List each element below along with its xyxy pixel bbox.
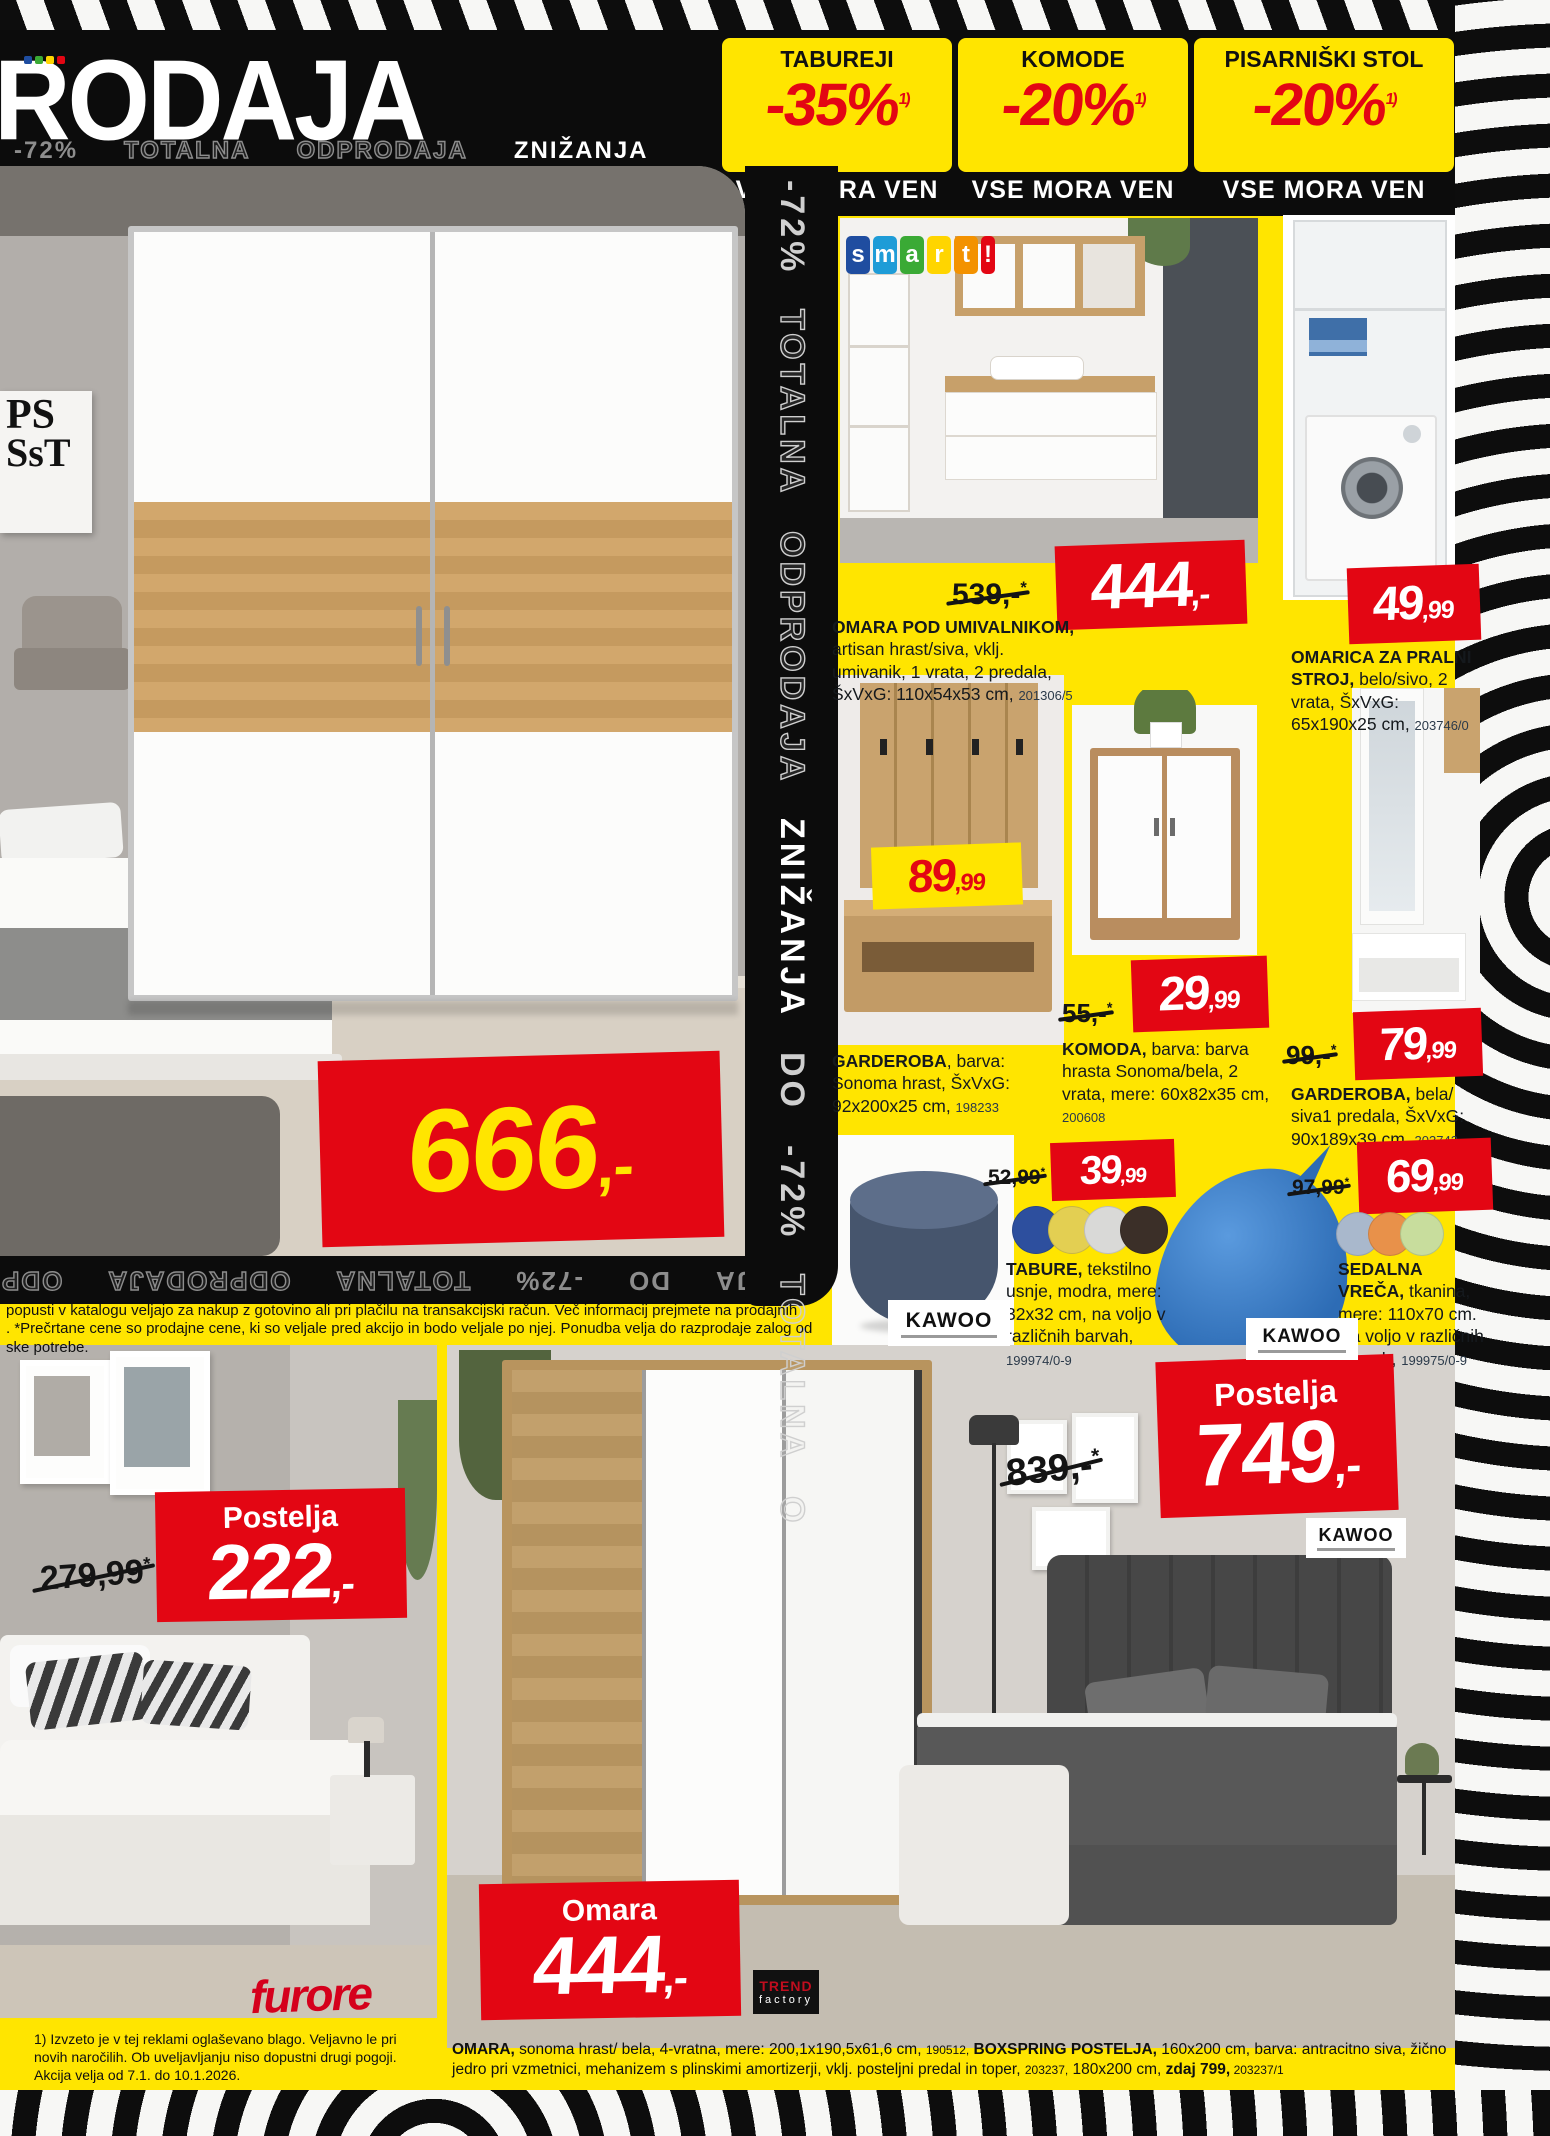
door-handle [1170,818,1175,836]
mini-mark-square [57,56,65,64]
poster-text-line1: PS [0,391,92,435]
coat-hook [972,739,979,755]
price: 444,- [1090,552,1212,617]
promo-tagline: VSE MORA VEN [1194,176,1454,210]
smart-logo-letter: s [846,236,870,274]
kawoo-logo: KAWOO [888,1300,1010,1346]
footnote-product-name: OMARA, [452,2041,515,2058]
footnote-sku: 203237/1 [1230,2063,1283,2077]
price: 749,- [1192,1408,1363,1498]
promo-box-tabureji: TABUREJI -35%1) [722,38,952,172]
watermark-strip-vertical: -72% TOTALNA ODPRODAJA ZNIŽANJA DO -72% … [745,166,838,1306]
price-box: 79,99 [1353,1008,1483,1080]
bed-pillow [0,802,124,865]
footnote-text: sonoma hrast/ bela, 4-vratna, mere: 200,… [515,2041,926,2058]
price-box-omara: Omara 444,- [479,1880,741,2021]
price: 29,99 [1158,970,1241,1019]
coat-hook [880,739,887,755]
zebra-pattern-bottom [0,2090,1550,2136]
kawoo-logo-text: KAWOO [906,1309,993,1333]
dark-wall-panel [1163,218,1258,563]
shelf-line [1295,308,1445,311]
watermark-word: TOTALNA [124,137,250,165]
armchair-seat [14,648,130,690]
product-photo-washer-cabinet [1283,215,1455,600]
wash-basin [990,356,1084,380]
promo-category: KOMODE [1021,46,1125,73]
mini-mark-square [35,56,43,64]
coat-hook [1016,739,1023,755]
product-photo-garderoba-2 [1352,688,1480,1013]
smart-logo-letter: m [873,236,897,274]
fine-print-line: popusti v katalogu veljajo za nakup z go… [6,1302,836,1320]
watermark-word: ODPRODAJA [296,137,467,165]
frame-art [124,1367,190,1467]
watermark-word: -72% [514,1265,583,1296]
promo-discount: -35%1) [763,73,912,136]
kawoo-logo-text: KAWOO [1263,1326,1342,1348]
kawoo-logo: KAWOO [1306,1518,1406,1558]
furore-logo: furore [249,1966,372,2024]
watermark-strip-flipped: ZNIŽANJA DO -72% TOTALNA ODPRODAJA ODP [0,1256,774,1304]
frame-art [34,1376,90,1456]
plant-pot [1150,722,1182,748]
smart-logo-letter: t [954,236,978,274]
wall-poster: PS SsT [0,391,92,533]
footnote-product-name: BOXSPRING POSTELJA, [969,2041,1157,2058]
mini-mark-square [46,56,54,64]
wall-frame [110,1351,210,1495]
price-box: 444,- [1055,540,1248,631]
color-swatch [1120,1206,1168,1254]
drawer-line [946,435,1156,437]
hero-price-box: 666,- [318,1051,725,1247]
product-description: GARDEROBA, barva: Sonoma hrast, ŠxVxG: 9… [832,1050,1067,1117]
footnote-sku: 190512, [926,2043,969,2057]
fine-print-line: novih naročilih. Ob uveljavljanju niso d… [34,2048,434,2066]
price: 79,99 [1378,1021,1458,1067]
smart-logo-letter: a [900,236,924,274]
promo-tagline: VSE MORA VEN [958,176,1188,210]
side-table-top [1397,1775,1452,1783]
watermark-word: DO [627,1265,670,1296]
price: 444,- [530,1925,690,2006]
fine-print-line: . *Prečrtane cene so prodajne cene, ki s… [6,1320,836,1338]
old-price: 539,-* [952,578,1027,612]
watermark-word: ODP [0,1265,62,1296]
shoe-bench [844,900,1052,1012]
footnote-text: 180x200 cm, [1068,2061,1165,2078]
washing-machine [1305,415,1437,581]
wardrobe-shadow [128,1001,738,1015]
footnote-price-now: zdaj 799, [1166,2061,1231,2078]
price-box-yellow: 89,99 [871,842,1023,909]
watermark-word: DO [772,1052,811,1111]
striped-pillow [25,1651,149,1731]
striped-pillow [140,1659,252,1730]
wardrobe [128,226,738,1001]
bench-slot [1359,958,1459,992]
old-price: 279,99* [39,1552,153,1599]
price-box-postelja-right: Postelja 749,- [1155,1354,1398,1518]
washer-door [1341,457,1403,519]
smart-logo-bang: ! [981,236,995,274]
watermark-word: TOTALNA [772,309,811,496]
wardrobe-handle [444,606,450,666]
kawoo-logo-underline [1317,1548,1395,1551]
old-price: 99,-* [1286,1040,1336,1071]
price: 39,99 [1079,1150,1147,1190]
wardrobe-white-door [646,1370,782,1895]
color-swatch [1400,1212,1444,1256]
door-rail [642,1370,646,1895]
bench [1352,933,1466,1001]
color-swatches [1012,1206,1156,1254]
komoda-cabinet [1090,748,1240,940]
price: 69,99 [1385,1153,1465,1199]
bed-duvet [0,1815,370,1925]
price-box: 69,99 [1357,1138,1493,1215]
product-photo-komoda [1072,690,1257,975]
watermark-word: O [772,1496,811,1526]
mini-brand-mark [24,56,65,64]
wardrobe [502,1360,932,1905]
watermark-word: -72% [14,137,78,165]
old-price: 52,99* [988,1166,1045,1190]
price: 49,99 [1372,580,1455,629]
product-description: TABURE, tekstilno usnje, modra, mere: 32… [1006,1258,1188,1370]
kawoo-logo-underline [1258,1350,1345,1353]
towels [1309,340,1367,352]
zebra-pattern-top [0,0,1550,32]
kawoo-logo-text: KAWOO [1319,1525,1394,1546]
legal-fine-print-mid: popusti v katalogu veljajo za nakup z go… [6,1302,836,1357]
promo-discount: -20%1) [999,73,1148,136]
wardrobe-door-gap [430,232,435,995]
shelf-line [850,345,908,348]
bottom-photo-bedroom-left [0,1345,437,2018]
rug [0,1096,280,1256]
product-description: SEDALNA VREČA, tkanina, mere: 110x70 cm.… [1338,1258,1488,1370]
price-box: 29,99 [1131,956,1269,1033]
promo-box-pisarniski-stol: PISARNIŠKI STOL -20%1) [1194,38,1454,172]
price-box: 49,99 [1347,564,1482,645]
cabinet-door [1023,244,1075,308]
coat-hook [926,739,933,755]
fine-print-line: ske potrebe. [6,1339,836,1357]
smart-logo: s m a r t ! [846,236,995,274]
mini-mark-square [24,56,32,64]
wardrobe-wood-door [512,1370,642,1895]
lamp-shade [348,1717,384,1743]
watermark-word: TOTALNA [334,1265,470,1296]
komoda-door [1098,756,1162,918]
color-swatches [1336,1212,1432,1256]
door-handle [1154,818,1159,836]
bed-frame [0,1054,342,1080]
product-description: OMARA POD UMIVALNIKOM, artisan hrast/siv… [832,616,1082,706]
white-throw [899,1765,1069,1925]
price: 89,99 [907,853,987,899]
trend-factory-logo: TREND factory [753,1970,819,2014]
wall-frame [20,1360,110,1484]
footnote-sku: 203237, [1025,2063,1068,2077]
watermark-word: -72% [772,180,811,275]
watermark-word: ZNIŽANJA [772,818,811,1018]
old-price: 55,-* [1062,998,1112,1029]
vanity-drawers [945,392,1157,480]
price-box: 39,99 [1050,1139,1176,1201]
lamp-stem [364,1741,370,1777]
komoda-door [1167,756,1231,918]
watermark-word: ZNIŽANJA [514,137,649,165]
watermark-word: ODPRODAJA [106,1265,290,1296]
promo-category: PISARNIŠKI STOL [1225,46,1424,73]
shelf-line [850,425,908,428]
product-footnote-bottom-right: OMARA, sonoma hrast/ bela, 4-vratna, mer… [452,2040,1452,2080]
old-price: 97,99* [1292,1176,1349,1200]
trend-logo-subtext: factory [759,1994,813,2006]
watermark-word: ODPRODAJA [772,531,811,784]
watermark-word: -72% [772,1145,811,1240]
fine-print-line: Akcija velja od 7.1. do 10.1.2026. [34,2066,434,2084]
wardrobe-handle [416,606,422,666]
promo-box-komode: KOMODE -20%1) [958,38,1188,172]
product-description: KOMODA, barva: barva hrasta Sonoma/bela,… [1062,1038,1280,1128]
kawoo-logo: KAWOO [1246,1318,1358,1360]
smart-logo-letter: r [927,236,951,274]
poster-text-line2: SsT [0,435,92,471]
floor-lamp-shade [969,1415,1019,1445]
trend-logo-text: TREND [759,1978,812,1994]
price: 222,- [205,1532,357,1609]
tall-cabinet [848,273,910,512]
fine-print-line: 1) Izvzeto je v tej reklami oglaševano b… [34,2030,434,2048]
catalog-page: RODAJA TABUREJI -35%1) KOMODE -20%1) PIS… [0,0,1550,2136]
kawoo-logo-underline [901,1335,996,1338]
side-table-leg [1422,1783,1426,1855]
table-plant [1405,1743,1439,1775]
price-box-postelja-left: Postelja 222,- [155,1488,407,1622]
promo-category: TABUREJI [780,46,893,73]
hero-price: 666,- [404,1090,637,1208]
cabinet-door [1083,244,1135,308]
watermark-strip-top: -72% TOTALNA ODPRODAJA ZNIŽANJA [14,136,654,166]
pouf-top [850,1171,998,1229]
nightstand [330,1775,415,1865]
product-description: OMARICA ZA PRALNI STROJ, belo/sivo, 2 vr… [1291,646,1487,736]
promo-discount: -20%1) [1250,73,1399,136]
washer-dial [1403,425,1421,443]
legal-fine-print-bottom-left: 1) Izvzeto je v tej reklami oglaševano b… [34,2030,434,2085]
bench-slot [862,942,1034,972]
